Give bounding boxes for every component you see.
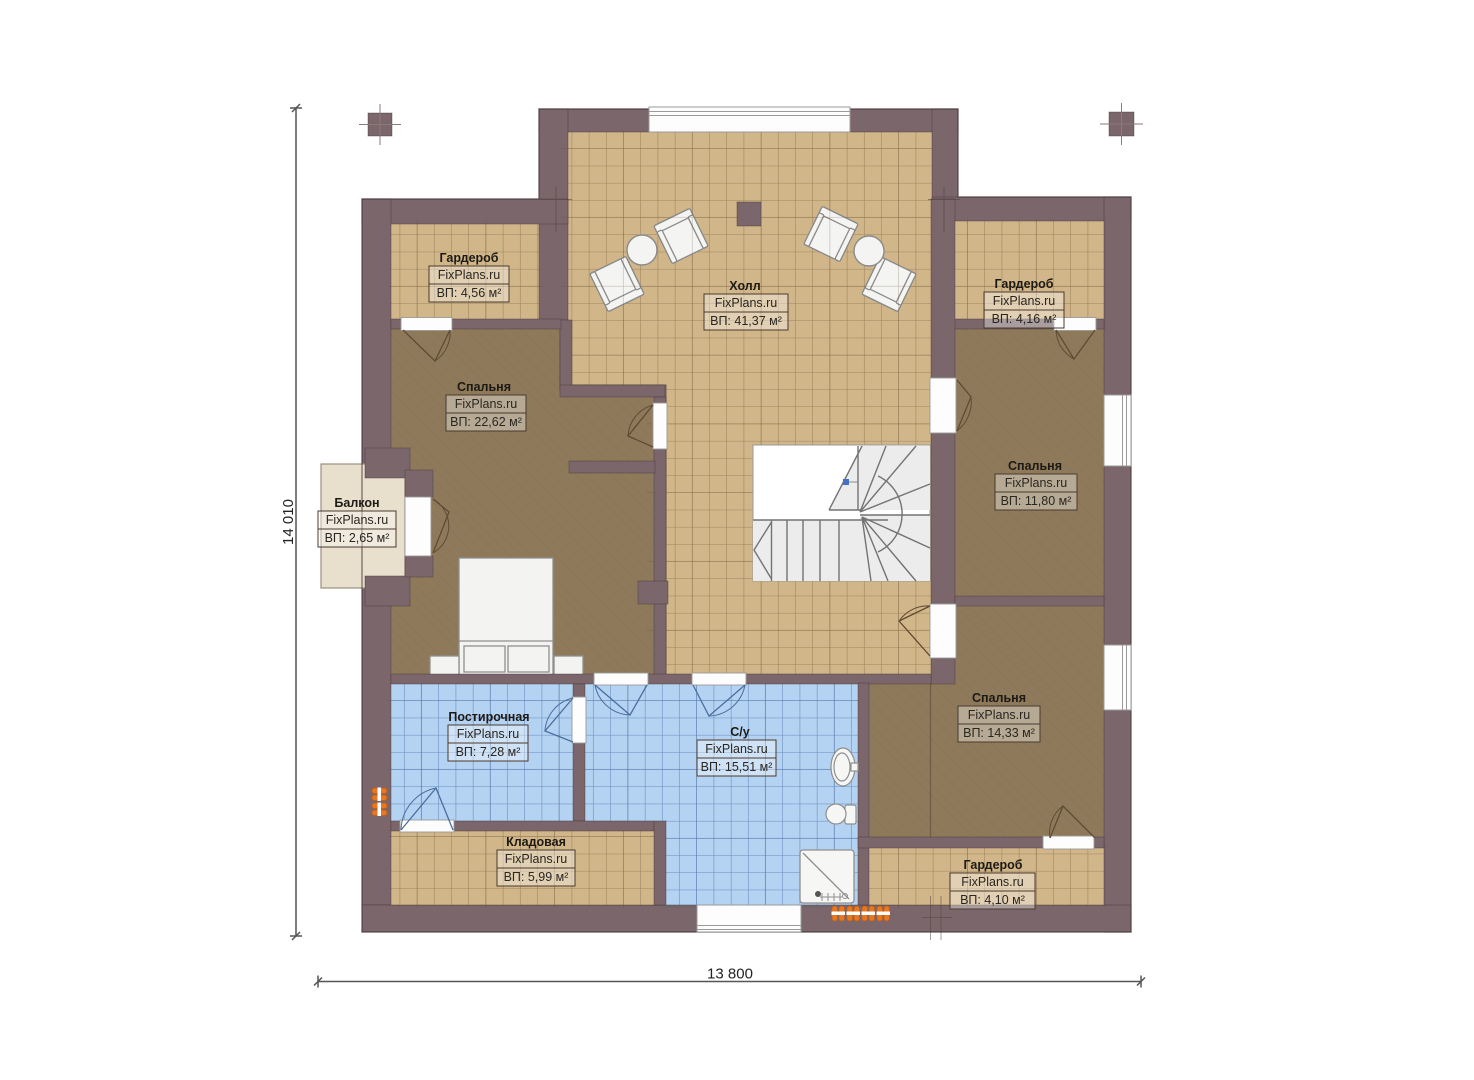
svg-text:Спальня: Спальня: [457, 380, 511, 394]
svg-text:ВП: 5,99 м²: ВП: 5,99 м²: [504, 870, 569, 884]
svg-text:ВП: 15,51 м²: ВП: 15,51 м²: [701, 760, 773, 774]
svg-text:FixPlans.ru: FixPlans.ru: [1005, 476, 1068, 490]
svg-text:ВП: 4,56 м²: ВП: 4,56 м²: [437, 286, 502, 300]
svg-text:Гардероб: Гардероб: [963, 858, 1022, 872]
svg-text:FixPlans.ru: FixPlans.ru: [505, 852, 568, 866]
svg-text:Балкон: Балкон: [334, 496, 379, 510]
svg-text:FixPlans.ru: FixPlans.ru: [455, 397, 518, 411]
svg-text:С/у: С/у: [730, 725, 750, 739]
svg-text:FixPlans.ru: FixPlans.ru: [993, 294, 1056, 308]
svg-text:Постирочная: Постирочная: [448, 710, 529, 724]
svg-text:FixPlans.ru: FixPlans.ru: [326, 513, 389, 527]
svg-text:13 800: 13 800: [707, 966, 753, 983]
svg-text:ВП: 11,80 м²: ВП: 11,80 м²: [1001, 494, 1072, 508]
svg-text:Спальня: Спальня: [1008, 459, 1062, 473]
svg-text:ВП: 7,28 м²: ВП: 7,28 м²: [456, 745, 521, 759]
svg-text:FixPlans.ru: FixPlans.ru: [715, 296, 778, 310]
svg-text:Гардероб: Гардероб: [994, 277, 1053, 291]
svg-text:Спальня: Спальня: [972, 691, 1026, 705]
svg-text:ВП: 41,37 м²: ВП: 41,37 м²: [710, 314, 782, 328]
svg-text:FixPlans.ru: FixPlans.ru: [438, 268, 501, 282]
svg-text:FixPlans.ru: FixPlans.ru: [705, 742, 768, 756]
svg-text:Холл: Холл: [729, 279, 760, 293]
svg-text:FixPlans.ru: FixPlans.ru: [457, 727, 520, 741]
svg-text:14 010: 14 010: [280, 499, 297, 545]
svg-text:ВП: 2,65 м²: ВП: 2,65 м²: [325, 531, 390, 545]
svg-text:FixPlans.ru: FixPlans.ru: [961, 875, 1024, 889]
svg-text:ВП: 22,62 м²: ВП: 22,62 м²: [450, 415, 522, 429]
svg-text:ВП: 4,16 м²: ВП: 4,16 м²: [992, 312, 1057, 326]
svg-text:ВП: 4,10 м²: ВП: 4,10 м²: [960, 893, 1025, 907]
svg-text:Кладовая: Кладовая: [506, 835, 566, 849]
svg-text:FixPlans.ru: FixPlans.ru: [968, 708, 1031, 722]
svg-text:Гардероб: Гардероб: [439, 251, 498, 265]
svg-text:ВП: 14,33 м²: ВП: 14,33 м²: [963, 726, 1035, 740]
